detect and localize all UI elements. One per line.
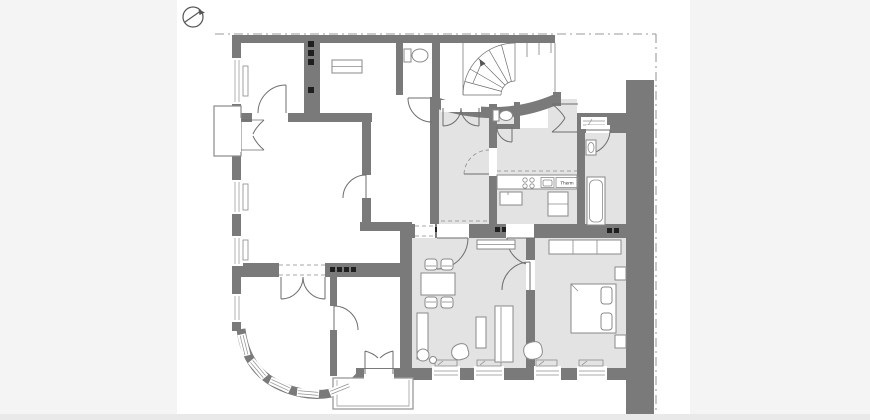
bathtub-icon — [587, 177, 605, 225]
terrace — [333, 378, 413, 409]
chair — [441, 297, 453, 308]
sofa — [495, 306, 513, 362]
toilet-icon-wc-small — [493, 110, 513, 121]
nightstand — [615, 267, 626, 280]
bottom-strip — [0, 414, 870, 420]
small-table — [476, 317, 486, 348]
washbasin-icon — [586, 140, 596, 155]
toilet-icon-wc-center — [404, 49, 428, 62]
room-entrance-hall — [497, 128, 577, 175]
plant-icon — [417, 349, 429, 361]
plant-icon — [430, 357, 437, 364]
chair — [441, 259, 453, 270]
nightstand — [615, 335, 626, 348]
wardrobe — [549, 240, 621, 254]
floor-plan-image: Therm — [0, 0, 870, 420]
pillow — [601, 313, 612, 330]
water-heater-label: Therm — [560, 180, 573, 185]
dining-table — [421, 273, 455, 295]
room-hall — [439, 107, 489, 224]
armchair — [524, 342, 543, 360]
chair — [425, 297, 437, 308]
plant-icon — [452, 344, 469, 360]
kitchen-table — [500, 192, 522, 205]
chair — [425, 259, 437, 270]
pillow — [601, 287, 612, 304]
